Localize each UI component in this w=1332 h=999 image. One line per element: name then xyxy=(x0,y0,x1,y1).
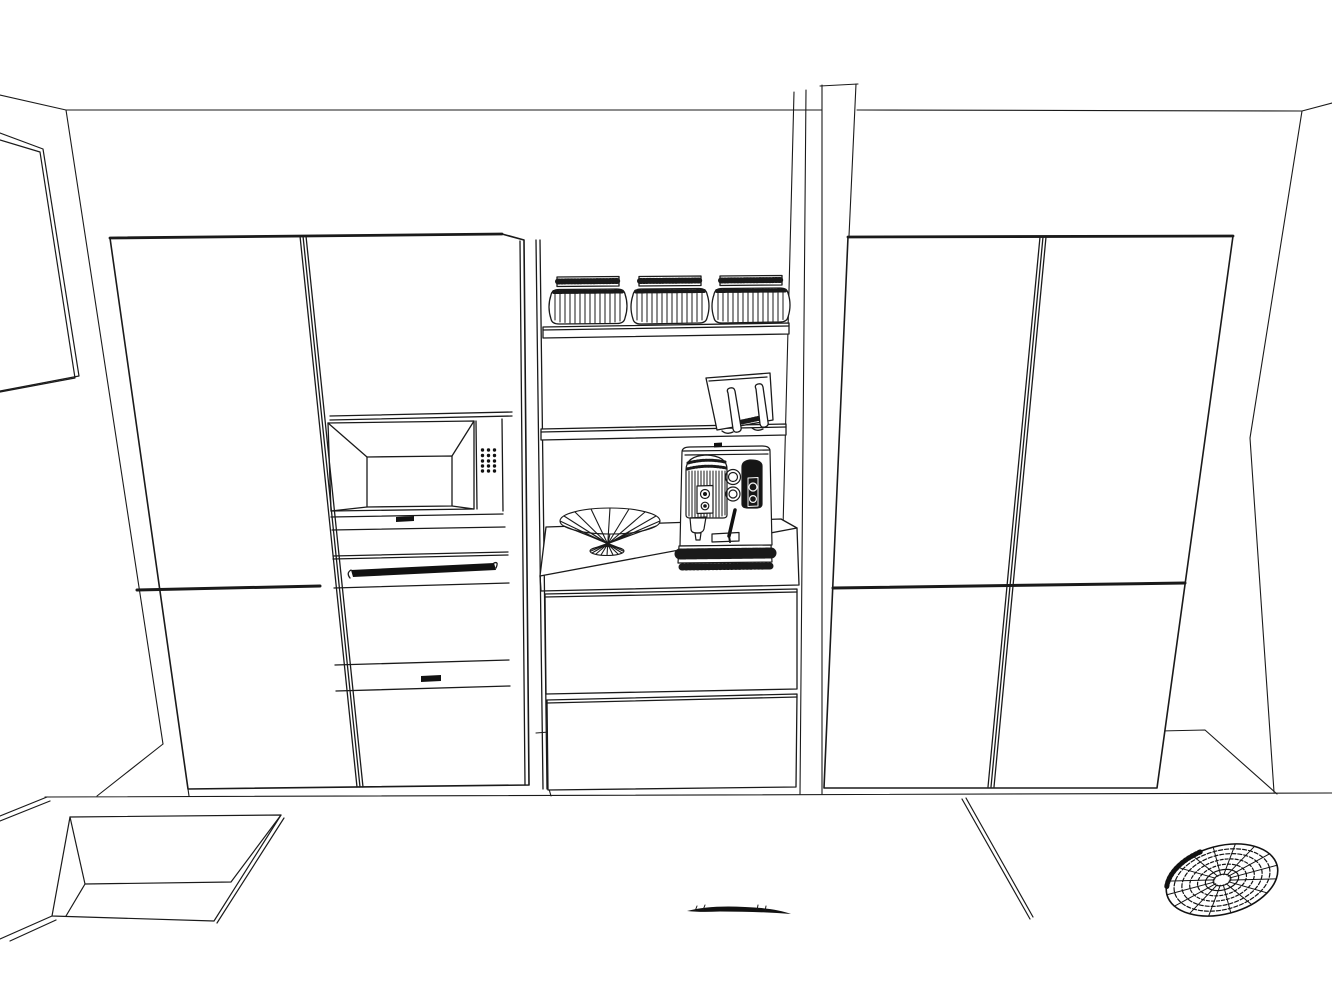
jar-lid-hatch xyxy=(640,281,700,282)
jar-3[interactable] xyxy=(712,276,790,324)
drawer-2[interactable] xyxy=(547,694,797,790)
wireframe-canvas xyxy=(0,0,1332,999)
viewport-3d-kitchen xyxy=(0,0,1332,999)
machine-button-1-dot xyxy=(703,492,707,496)
jar-lid-hatch xyxy=(721,280,781,281)
espresso-machine[interactable] xyxy=(678,443,772,568)
machine-base-fringe xyxy=(682,566,770,567)
cookbook-stand[interactable] xyxy=(706,373,773,433)
jar-rim-hatch xyxy=(717,291,785,292)
jar-1[interactable] xyxy=(549,277,627,325)
machine-base-knurl xyxy=(680,553,771,554)
storage-jars[interactable] xyxy=(549,276,790,325)
jar-rim-hatch xyxy=(554,292,622,293)
jar-lid-hatch xyxy=(558,281,618,282)
tall-cabinet-left[interactable] xyxy=(110,234,547,789)
jar-rim-hatch xyxy=(636,291,704,292)
microwave-brand-label xyxy=(396,516,414,522)
machine-button-2-dot xyxy=(703,504,707,508)
machine-milk-jug xyxy=(742,460,762,508)
machine-top-nub xyxy=(714,443,722,448)
drawer-1[interactable] xyxy=(545,589,797,694)
jar-2[interactable] xyxy=(631,276,709,324)
oven-brand-label xyxy=(421,675,441,682)
